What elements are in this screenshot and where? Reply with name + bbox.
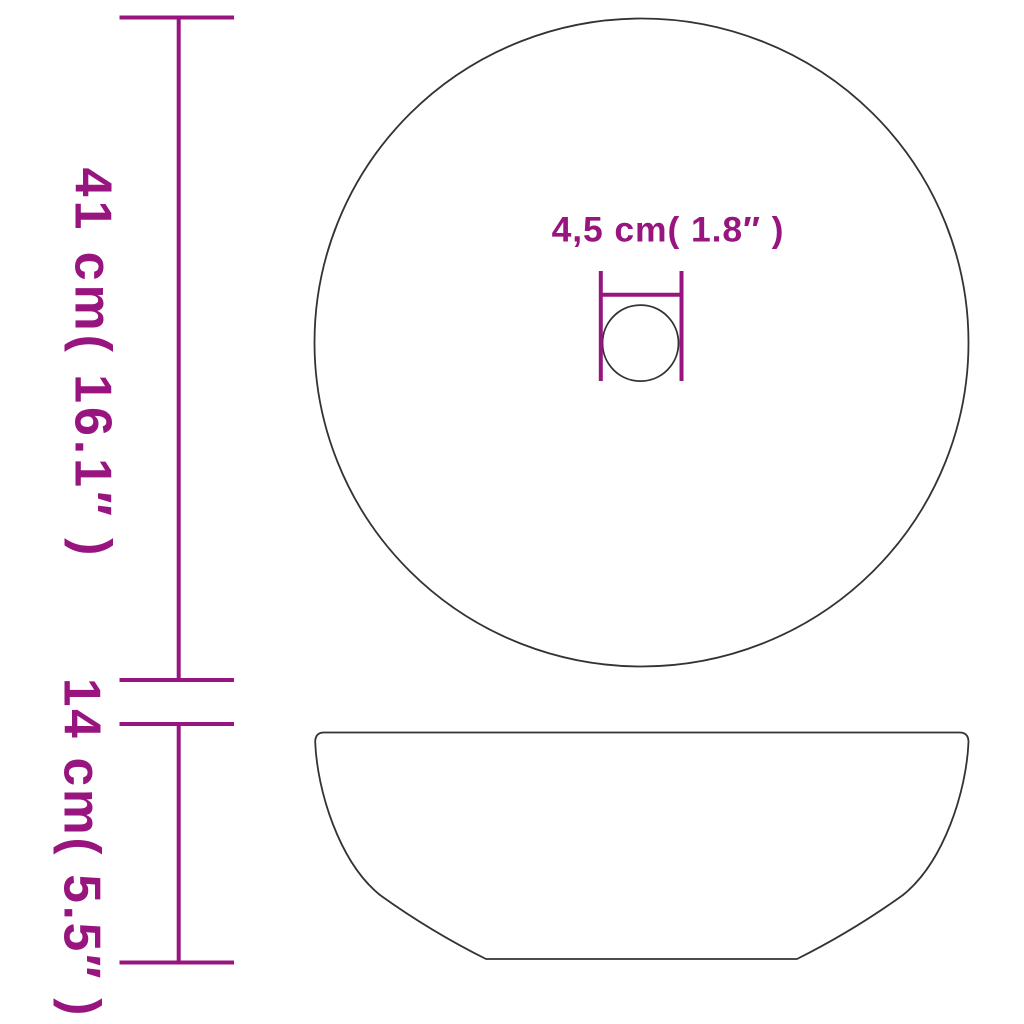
svg-text:41 cm( 16.1″ ): 41 cm( 16.1″ ) (64, 168, 122, 560)
svg-text:4,5 cm( 1.8″ ): 4,5 cm( 1.8″ ) (552, 209, 785, 249)
svg-text:14 cm( 5.5″ ): 14 cm( 5.5″ ) (54, 678, 112, 1018)
